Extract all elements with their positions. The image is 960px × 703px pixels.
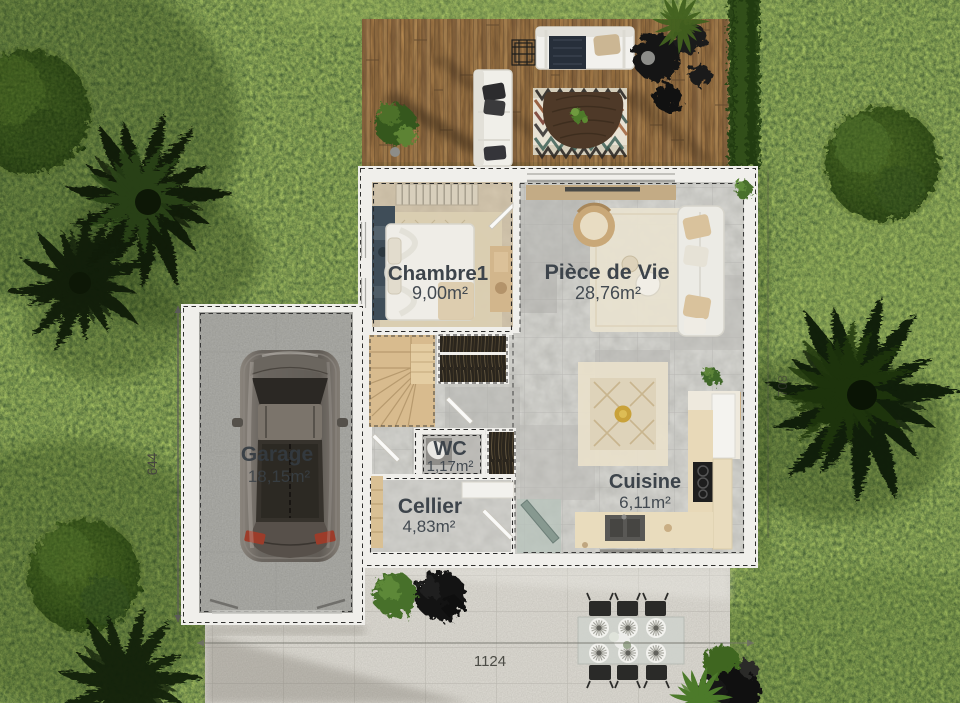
svg-text:Cellier: Cellier <box>398 495 462 518</box>
svg-text:28,76m²: 28,76m² <box>575 283 641 303</box>
svg-text:Cuisine: Cuisine <box>609 471 681 493</box>
svg-text:6,11m²: 6,11m² <box>619 493 671 512</box>
svg-text:1,17m²: 1,17m² <box>427 458 474 475</box>
svg-text:Garage: Garage <box>241 443 313 466</box>
svg-text:708: 708 <box>775 375 790 397</box>
svg-text:9,00m²: 9,00m² <box>412 283 468 303</box>
svg-text:4,83m²: 4,83m² <box>403 517 456 536</box>
svg-text:Chambre1: Chambre1 <box>388 262 488 285</box>
svg-text:Pièce de Vie: Pièce de Vie <box>544 260 669 284</box>
svg-text:WC: WC <box>433 438 466 460</box>
svg-text:644: 644 <box>145 452 160 475</box>
svg-text:18,15m²: 18,15m² <box>248 467 311 486</box>
svg-text:1124: 1124 <box>474 653 506 670</box>
